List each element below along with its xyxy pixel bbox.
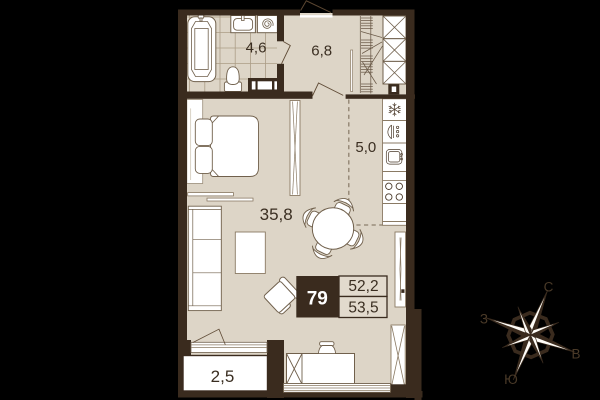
svg-text:53,5: 53,5 — [348, 300, 378, 317]
svg-text:В: В — [571, 347, 580, 362]
svg-text:4,6: 4,6 — [246, 39, 267, 56]
svg-text:79: 79 — [307, 289, 328, 310]
svg-text:С: С — [544, 280, 554, 295]
svg-text:6,8: 6,8 — [311, 42, 332, 59]
svg-text:З: З — [480, 312, 488, 327]
svg-text:5,0: 5,0 — [355, 139, 376, 156]
svg-text:35,8: 35,8 — [260, 205, 293, 224]
svg-text:52,2: 52,2 — [348, 278, 378, 295]
svg-text:Ю: Ю — [504, 372, 518, 387]
svg-text:2,5: 2,5 — [211, 367, 235, 386]
